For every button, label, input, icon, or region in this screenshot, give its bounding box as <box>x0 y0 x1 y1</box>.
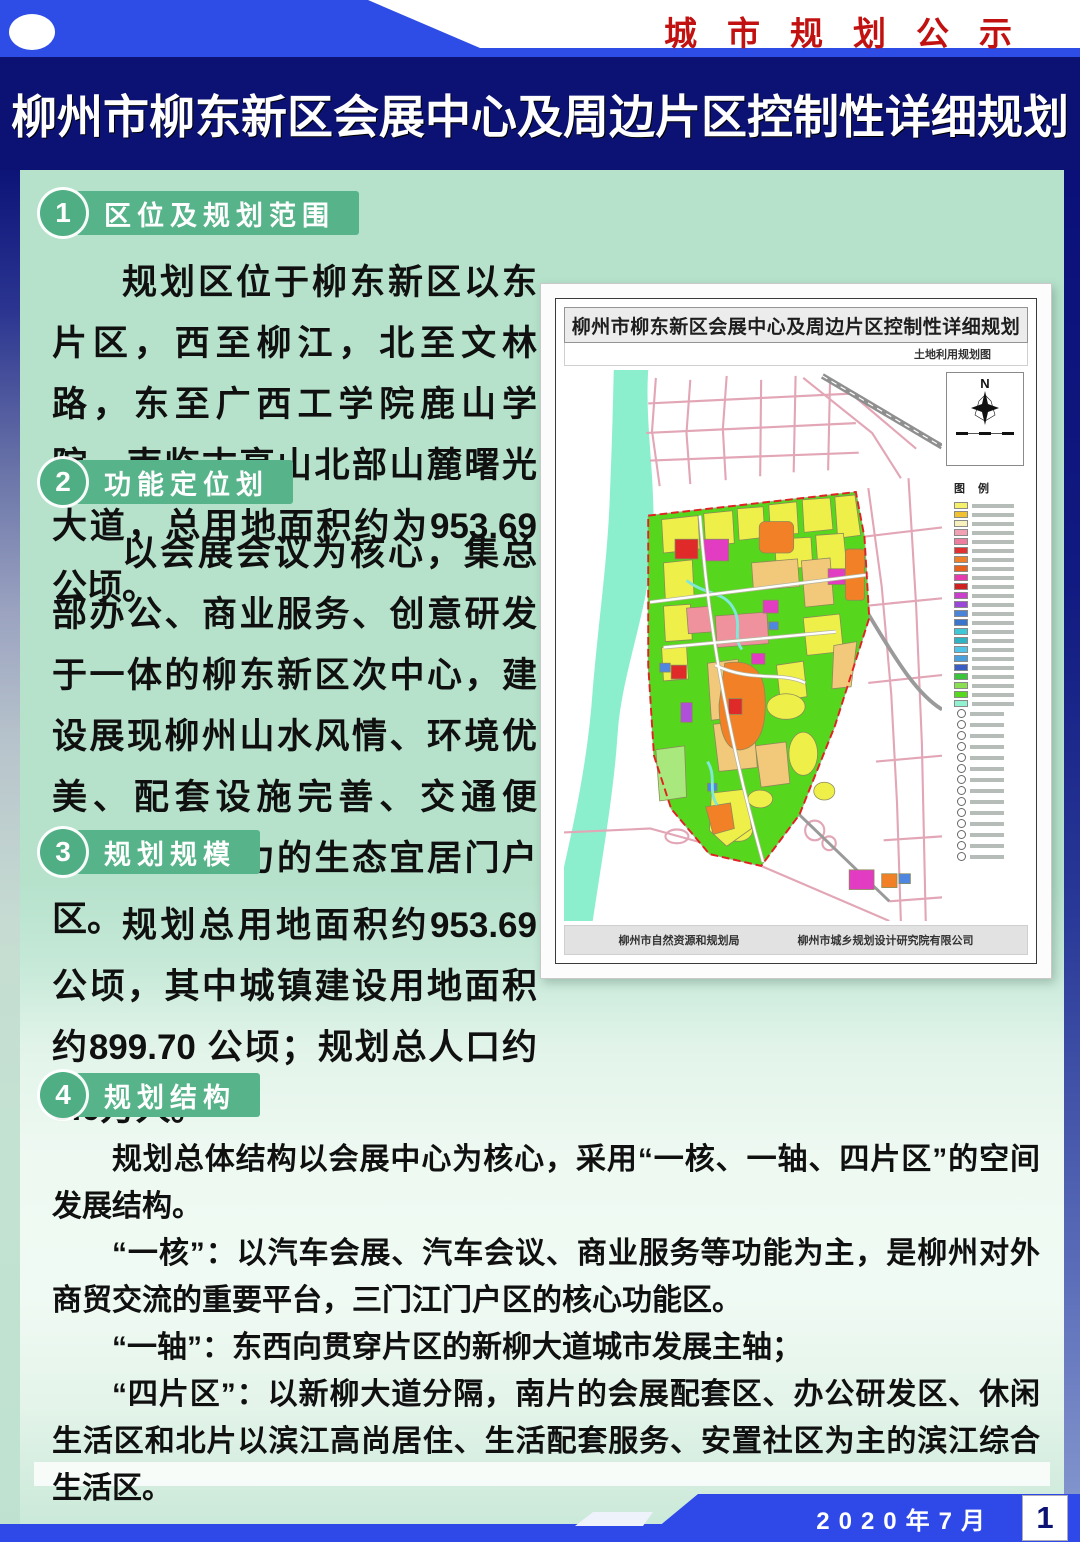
legend-icon-item <box>954 775 1028 784</box>
footer-date: 2020年7月 <box>816 1501 994 1536</box>
legend-icon-item <box>954 797 1028 806</box>
map-author-left: 柳州市自然资源和规划局 <box>619 932 740 948</box>
section-body: 规划总体结构以会展中心为核心，采用“一核、一轴、四片区”的空间发展结构。 “一核… <box>52 1136 1040 1512</box>
legend-icon-item <box>954 830 1028 839</box>
section-header: 1 区位及规划范围 <box>40 190 537 236</box>
section-number-badge: 2 <box>40 459 86 505</box>
north-label: N <box>980 376 989 391</box>
section-heading-tag: 区位及规划范围 <box>76 191 359 235</box>
legend-items <box>954 502 1028 861</box>
legend-item <box>954 691 1028 698</box>
legend-item <box>954 673 1028 680</box>
legend-item <box>954 655 1028 662</box>
legend-title: 图 例 <box>954 480 1028 496</box>
legend-icon-item <box>954 709 1028 718</box>
planning-notice-poster: 城市规划公示 柳州市柳东新区会展中心及周边片区控制性详细规划 1 区位及规划范围… <box>0 0 1080 1542</box>
legend-item <box>954 556 1028 563</box>
map-footer: 柳州市自然资源和规划局 柳州市城乡规划设计研究院有限公司 <box>564 925 1028 955</box>
compass-icon <box>971 391 999 425</box>
legend-icon-item <box>954 808 1028 817</box>
page-number-badge: 1 <box>1022 1495 1068 1541</box>
title-band: 柳州市柳东新区会展中心及周边片区控制性详细规划 <box>0 57 1080 170</box>
legend-item <box>954 664 1028 671</box>
section-header: 4 规划结构 <box>40 1072 1040 1118</box>
legend-item <box>954 610 1028 617</box>
legend-item <box>954 511 1028 518</box>
legend-item <box>954 682 1028 689</box>
legend-item <box>954 502 1028 509</box>
legend-item <box>954 619 1028 626</box>
legend-item <box>954 646 1028 653</box>
section-header: 3 规划规模 <box>40 829 537 875</box>
legend-icon-item <box>954 764 1028 773</box>
section-heading-tag: 规划结构 <box>76 1073 260 1117</box>
legend-icon-item <box>954 742 1028 751</box>
section-planning-structure: 4 规划结构 规划总体结构以会展中心为核心，采用“一核、一轴、四片区”的空间发展… <box>40 1072 1040 1512</box>
map-author-right: 柳州市城乡规划设计研究院有限公司 <box>798 932 974 948</box>
legend-icon-item <box>954 852 1028 861</box>
legend-icon-item <box>954 731 1028 740</box>
paragraph: “一轴”：东西向贯穿片区的新柳大道城市发展主轴； <box>52 1324 1040 1371</box>
banner-ellipse-decoration <box>9 14 55 50</box>
legend-icon-item <box>954 753 1028 762</box>
map-title: 柳州市柳东新区会展中心及周边片区控制性详细规划 <box>564 307 1028 343</box>
paragraph: “四片区”：以新柳大道分隔，南片的会展配套区、办公研发区、休闲生活区和北片以滨江… <box>52 1371 1040 1512</box>
legend-item <box>954 592 1028 599</box>
page-title: 柳州市柳东新区会展中心及周边片区控制性详细规划 <box>11 81 1069 147</box>
land-use-map-drawing <box>564 370 942 921</box>
legend-item <box>954 529 1028 536</box>
paragraph: “一核”：以汽车会展、汽车会议、商业服务等功能为主，是柳州对外商贸交流的重要平台… <box>52 1230 1040 1324</box>
legend-icon-item <box>954 819 1028 828</box>
footer-block: 2020年7月 1 <box>640 1494 1080 1542</box>
legend-item <box>954 547 1028 554</box>
legend-item <box>954 520 1028 527</box>
map-sidebar: N 图 例 <box>942 370 1028 921</box>
section-number-badge: 4 <box>40 1072 86 1118</box>
legend-item <box>954 538 1028 545</box>
map-body: N 图 例 <box>564 370 1028 921</box>
legend-item <box>954 700 1028 707</box>
legend-item <box>954 601 1028 608</box>
legend-item <box>954 628 1028 635</box>
north-indicator: N <box>946 372 1024 466</box>
left-edge-gradient <box>0 170 20 1542</box>
legend-icon-item <box>954 841 1028 850</box>
map-frame: 柳州市柳东新区会展中心及周边片区控制性详细规划 土地利用规划图 <box>555 298 1037 964</box>
top-banner: 城市规划公示 <box>0 0 1080 57</box>
section-heading-tag: 规划规模 <box>76 830 260 874</box>
paragraph: 规划总体结构以会展中心为核心，采用“一核、一轴、四片区”的空间发展结构。 <box>52 1136 1040 1230</box>
map-subtitle-row: 土地利用规划图 <box>564 343 1028 366</box>
legend-item <box>954 574 1028 581</box>
legend-icon-item <box>954 720 1028 729</box>
section-header: 2 功能定位划 <box>40 459 537 505</box>
legend-icon-item <box>954 786 1028 795</box>
map-subtitle: 土地利用规划图 <box>914 346 991 362</box>
land-use-map-sheet: 柳州市柳东新区会展中心及周边片区控制性详细规划 土地利用规划图 <box>540 283 1052 979</box>
right-edge-gradient <box>1064 170 1080 1542</box>
legend-item <box>954 583 1028 590</box>
scale-bar <box>956 432 1014 435</box>
section-number-badge: 3 <box>40 829 86 875</box>
map-legend: 图 例 <box>942 480 1028 863</box>
legend-item <box>954 637 1028 644</box>
section-heading-tag: 功能定位划 <box>76 460 293 504</box>
legend-item <box>954 565 1028 572</box>
notice-label: 城市规划公示 <box>664 7 1042 55</box>
section-number-badge: 1 <box>40 190 86 236</box>
